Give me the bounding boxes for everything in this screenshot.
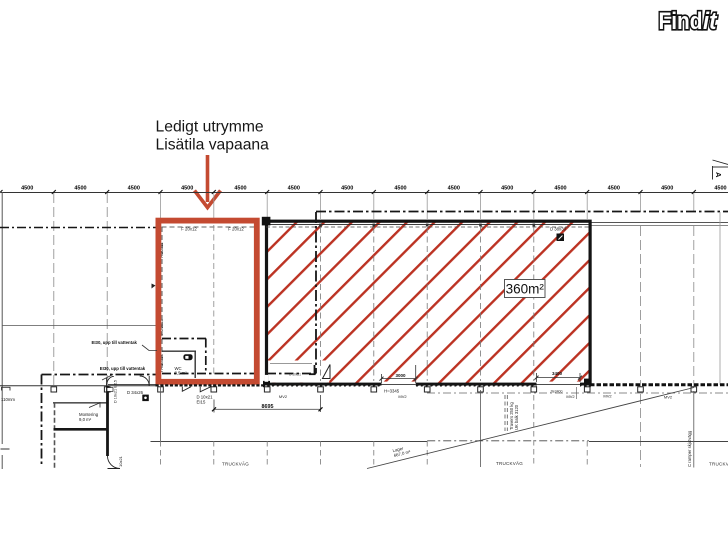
svg-text:4500: 4500 [448, 186, 460, 192]
svg-text:Lisätila vapaana: Lisätila vapaana [156, 137, 270, 154]
svg-text:D 34x26: D 34x26 [127, 390, 144, 395]
svg-text:4500: 4500 [661, 186, 673, 192]
svg-text:360m²: 360m² [506, 282, 545, 297]
svg-text:EI30, upp till vattentak: EI30, upp till vattentak [100, 366, 146, 371]
svg-text:MV2: MV2 [398, 394, 407, 399]
svg-text:MV2: MV2 [279, 394, 288, 399]
svg-text:110mm: 110mm [1, 397, 15, 402]
svg-text:4500: 4500 [288, 186, 300, 192]
svg-text:TRUCKVÄG: TRUCKVÄG [496, 460, 523, 466]
svg-text:C ramper skjutvägg: C ramper skjutvägg [687, 430, 692, 467]
svg-text:4500: 4500 [234, 186, 246, 192]
svg-text:4500: 4500 [21, 186, 33, 192]
svg-text:A: A [714, 172, 723, 178]
svg-text:8695: 8695 [262, 404, 274, 410]
svg-text:3000: 3000 [395, 373, 406, 378]
svg-text:8,5 m²: 8,5 m² [175, 371, 188, 376]
svg-text:10x21: 10x21 [118, 455, 123, 467]
svg-text:4500: 4500 [608, 186, 620, 192]
svg-text:4500: 4500 [394, 186, 406, 192]
svg-text:4500: 4500 [501, 186, 513, 192]
svg-text:4500: 4500 [554, 186, 566, 192]
svg-text:4500: 4500 [181, 186, 193, 192]
svg-text:D 38x39: D 38x39 [550, 227, 567, 232]
svg-text:EI30, upp till vattentak: EI30, upp till vattentak [92, 340, 138, 345]
svg-text:4500: 4500 [128, 186, 140, 192]
svg-text:F 20x12: F 20x12 [228, 227, 244, 232]
svg-text:it: it [703, 8, 717, 35]
svg-text:MV2: MV2 [566, 394, 575, 399]
svg-text:4500: 4500 [341, 186, 353, 192]
svg-text:9,0 m²: 9,0 m² [79, 417, 92, 422]
svg-text:MV2: MV2 [603, 394, 612, 399]
svg-text:H=3345: H=3345 [384, 389, 400, 394]
svg-text:4500: 4500 [74, 186, 86, 192]
svg-text:F 20x12: F 20x12 [181, 227, 197, 232]
svg-text:3400: 3400 [552, 371, 563, 376]
svg-text:4500: 4500 [714, 186, 726, 192]
svg-text:TRUCKVÄG: TRUCKVÄG [222, 461, 249, 467]
svg-text:EI15: EI15 [197, 400, 206, 405]
svg-text:MV2: MV2 [664, 395, 673, 400]
svg-text:Ledigt utrymme: Ledigt utrymme [156, 119, 264, 136]
svg-text:D 10x21 EI15: D 10x21 EI15 [114, 380, 118, 403]
svg-text:UK balk 3120: UK balk 3120 [514, 404, 519, 430]
svg-text:TRUCKVÄG: TRUCKVÄG [709, 461, 728, 467]
svg-text:Jte3400: Jte3400 [550, 389, 563, 393]
svg-text:Find: Find [659, 8, 703, 35]
